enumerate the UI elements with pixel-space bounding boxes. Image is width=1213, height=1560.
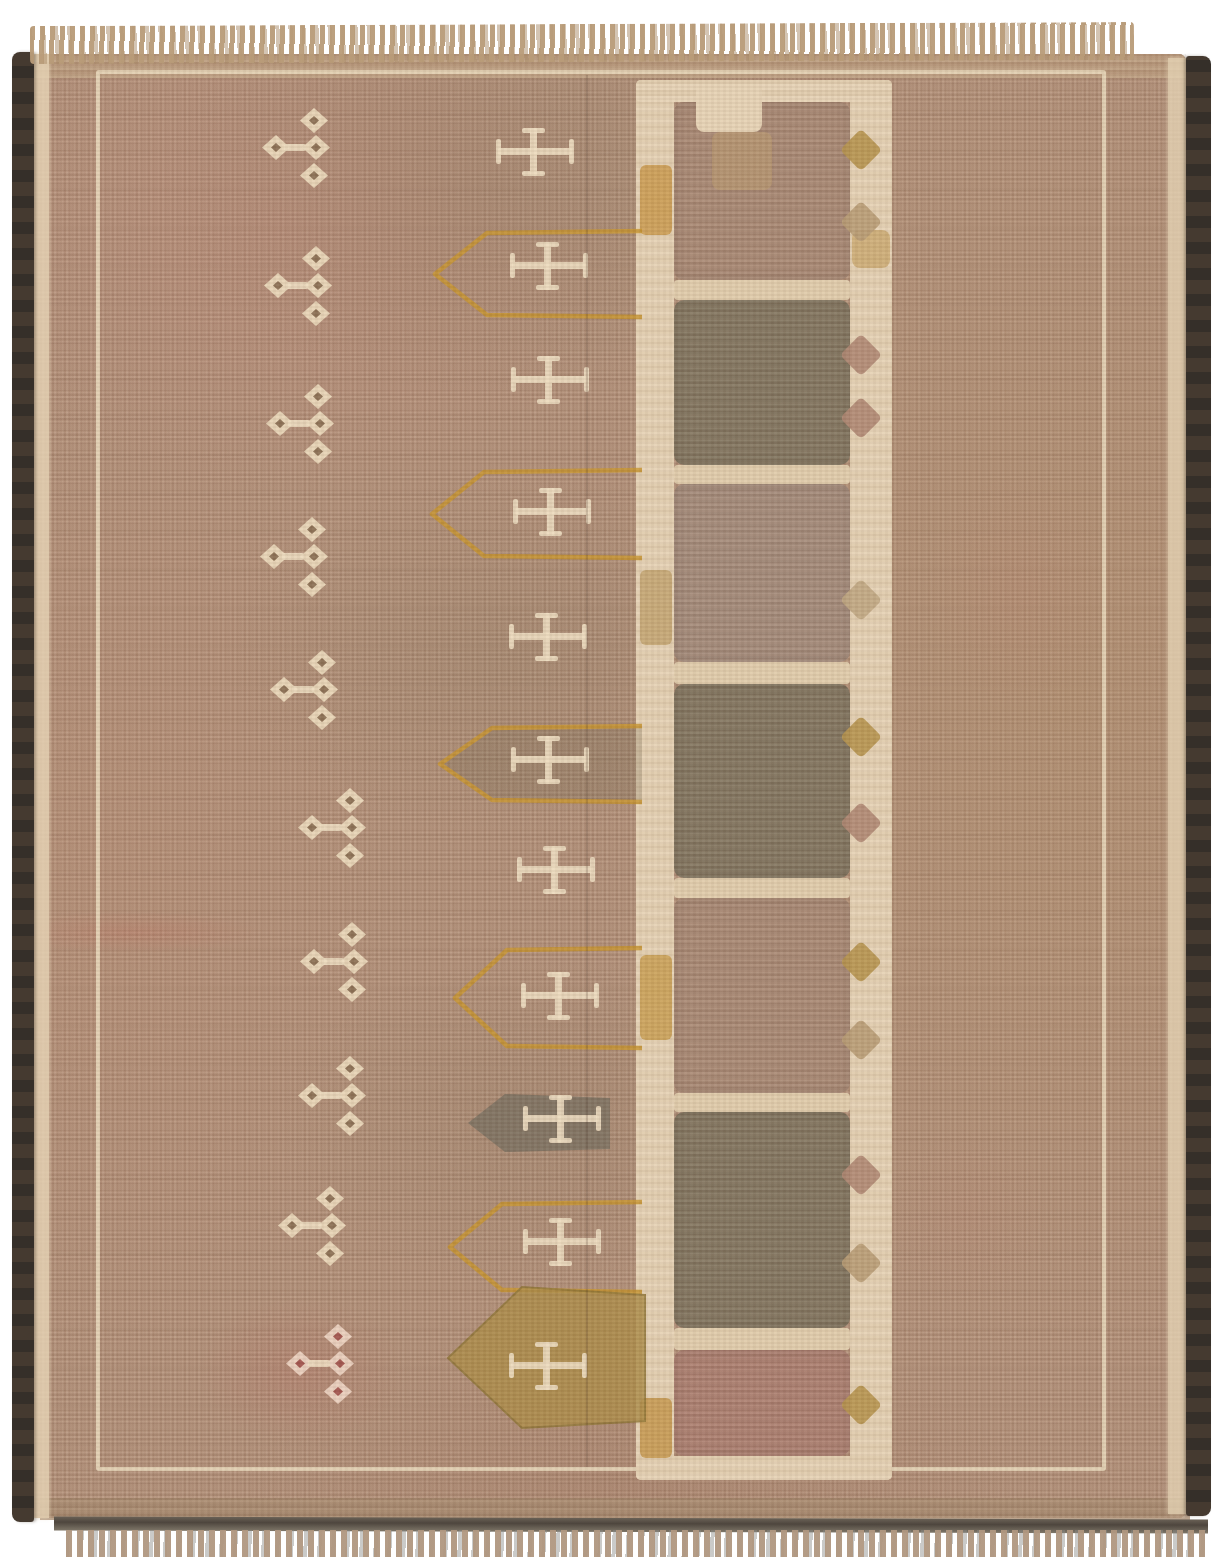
cross-tick-left [523, 1229, 528, 1254]
cluster-diamond-dot [315, 419, 325, 428]
cross-motif [511, 356, 589, 404]
diamond-cluster-motif [264, 246, 336, 326]
diamond-cluster-motif [260, 517, 332, 597]
cross-tick-bottom [537, 399, 560, 404]
cross-tick-right [596, 1106, 601, 1131]
cluster-diamond [324, 1324, 352, 1349]
cluster-diamond-dot [273, 281, 283, 290]
cross-tick-left [521, 983, 526, 1008]
cross-bar-vertical [551, 846, 558, 894]
cluster-diamond-dot [333, 1332, 343, 1341]
cross-bar-vertical [530, 128, 537, 176]
cluster-connector [300, 1222, 322, 1229]
cluster-diamond [300, 163, 328, 188]
cluster-diamond [338, 1083, 366, 1108]
cluster-diamond-dot [275, 419, 285, 428]
cross-motif [523, 1095, 601, 1143]
cluster-diamond-dot [327, 1221, 337, 1230]
cluster-diamond-dot [311, 254, 321, 263]
cross-bar-vertical [545, 736, 552, 784]
cross-tick-top [537, 736, 560, 741]
cluster-diamond [336, 788, 364, 813]
cross-motif [517, 846, 595, 894]
cluster-diamond [340, 949, 368, 974]
cross-tick-bottom [536, 285, 559, 290]
cluster-diamond [336, 843, 364, 868]
motif-layer [0, 0, 1213, 1560]
diamond-cluster-motif [262, 108, 334, 188]
cluster-diamond [324, 1379, 352, 1404]
fold-crease-line [586, 75, 588, 1467]
cluster-diamond [304, 273, 332, 298]
cluster-diamond [302, 135, 330, 160]
cluster-diamond [308, 705, 336, 730]
cross-tick-left [511, 747, 516, 772]
cluster-connector [320, 1092, 342, 1099]
cluster-diamond-dot [279, 685, 289, 694]
fringe-top [30, 22, 1134, 64]
cluster-diamond [300, 544, 328, 569]
cross-bar-vertical [543, 1342, 550, 1390]
cluster-diamond-dot [271, 143, 281, 152]
cross-motif [510, 242, 588, 290]
diamond-cluster-motif [286, 1324, 358, 1404]
cluster-diamond-dot [307, 823, 317, 832]
cluster-diamond-dot [313, 392, 323, 401]
cross-bar-vertical [543, 613, 550, 661]
diamond-cluster-motif [300, 922, 372, 1002]
cluster-diamond-dot [311, 143, 321, 152]
cluster-diamond [338, 922, 366, 947]
cluster-diamond-dot [347, 930, 357, 939]
cluster-diamond-dot [269, 552, 279, 561]
cluster-diamond [318, 1213, 346, 1238]
cross-tick-bottom [549, 1138, 572, 1143]
cross-tick-bottom [522, 171, 545, 176]
cross-tick-top [543, 846, 566, 851]
cross-tick-bottom [549, 1261, 572, 1266]
cluster-diamond-dot [313, 447, 323, 456]
cross-tick-left [509, 624, 514, 649]
cluster-diamond-dot [311, 309, 321, 318]
cluster-diamond [336, 1056, 364, 1081]
cluster-diamond-dot [317, 658, 327, 667]
cross-bar-vertical [545, 356, 552, 404]
cross-tick-bottom [547, 1015, 570, 1020]
cluster-connector [320, 824, 342, 831]
cluster-diamond-dot [287, 1221, 297, 1230]
diamond-cluster-motif [266, 384, 338, 464]
cluster-diamond-dot [317, 713, 327, 722]
cross-tick-bottom [537, 779, 560, 784]
cross-bar-vertical [544, 242, 551, 290]
cluster-diamond-dot [313, 281, 323, 290]
cluster-diamond [304, 384, 332, 409]
cluster-diamond [308, 650, 336, 675]
cluster-diamond-dot [347, 1091, 357, 1100]
cross-motif [496, 128, 574, 176]
cluster-diamond [316, 1186, 344, 1211]
cross-tick-top [539, 488, 562, 493]
cluster-diamond [304, 439, 332, 464]
cluster-diamond [302, 246, 330, 271]
cluster-connector [284, 144, 306, 151]
cross-tick-left [523, 1106, 528, 1131]
cross-tick-left [496, 139, 501, 164]
cross-tick-top [549, 1095, 572, 1100]
cross-tick-right [596, 1229, 601, 1254]
cluster-diamond [326, 1351, 354, 1376]
cluster-diamond [338, 977, 366, 1002]
cluster-diamond-dot [325, 1194, 335, 1203]
rug-photo [0, 0, 1213, 1560]
cluster-diamond-dot [335, 1359, 345, 1368]
cross-motif [511, 736, 589, 784]
cross-motif [509, 1342, 587, 1390]
cluster-diamond-dot [309, 957, 319, 966]
cluster-connector [286, 282, 308, 289]
cluster-diamond-dot [349, 957, 359, 966]
cluster-diamond [300, 108, 328, 133]
cross-tick-left [517, 857, 522, 882]
cross-tick-left [511, 367, 516, 392]
edge-stripe-left [33, 54, 49, 1518]
cluster-diamond [302, 301, 330, 326]
cross-tick-left [510, 253, 515, 278]
cluster-diamond-dot [347, 985, 357, 994]
cross-tick-top [537, 356, 560, 361]
cross-bar-vertical [547, 488, 554, 536]
diamond-cluster-motif [298, 788, 370, 868]
cluster-diamond-dot [307, 1091, 317, 1100]
cross-tick-bottom [543, 889, 566, 894]
cross-motif [513, 488, 591, 536]
cross-tick-top [547, 972, 570, 977]
cluster-diamond-dot [307, 525, 317, 534]
cluster-diamond-dot [309, 116, 319, 125]
cluster-diamond-dot [333, 1387, 343, 1396]
cross-bar-vertical [557, 1095, 564, 1143]
cluster-diamond [338, 815, 366, 840]
cross-tick-top [535, 613, 558, 618]
cross-tick-top [535, 1342, 558, 1347]
cross-tick-bottom [539, 531, 562, 536]
cluster-connector [288, 420, 310, 427]
cluster-diamond-dot [295, 1359, 305, 1368]
cluster-diamond [298, 572, 326, 597]
cluster-diamond-dot [309, 552, 319, 561]
cross-motif [523, 1218, 601, 1266]
cluster-diamond-dot [345, 851, 355, 860]
cluster-connector [308, 1360, 330, 1367]
cluster-diamond [316, 1241, 344, 1266]
cross-tick-top [522, 128, 545, 133]
cluster-diamond-dot [345, 1064, 355, 1073]
cluster-diamond [306, 411, 334, 436]
cross-tick-right [590, 857, 595, 882]
cluster-diamond-dot [319, 685, 329, 694]
cluster-diamond-dot [345, 796, 355, 805]
diamond-cluster-motif [298, 1056, 370, 1136]
cross-tick-left [513, 499, 518, 524]
cross-tick-top [549, 1218, 572, 1223]
cluster-connector [282, 553, 304, 560]
cross-bar-vertical [557, 1218, 564, 1266]
cluster-diamond-dot [347, 823, 357, 832]
cross-tick-left [509, 1353, 514, 1378]
cluster-diamond [298, 517, 326, 542]
selvedge-left [12, 52, 34, 1522]
cluster-diamond-dot [345, 1119, 355, 1128]
cross-tick-bottom [535, 656, 558, 661]
cross-motif [509, 613, 587, 661]
fringe-bottom [66, 1530, 1206, 1557]
cluster-diamond-dot [309, 171, 319, 180]
cross-tick-right [569, 139, 574, 164]
cluster-diamond-dot [307, 580, 317, 589]
diamond-cluster-motif [270, 650, 342, 730]
cluster-connector [292, 686, 314, 693]
diamond-cluster-motif [278, 1186, 350, 1266]
selvedge-right [1186, 56, 1211, 1516]
edge-stripe-right [1168, 58, 1186, 1514]
cluster-diamond [336, 1111, 364, 1136]
cluster-connector [322, 958, 344, 965]
cross-tick-bottom [535, 1385, 558, 1390]
cross-bar-vertical [555, 972, 562, 1020]
cluster-diamond-dot [325, 1249, 335, 1258]
cross-tick-top [536, 242, 559, 247]
cross-tick-right [594, 983, 599, 1008]
cluster-diamond [310, 677, 338, 702]
